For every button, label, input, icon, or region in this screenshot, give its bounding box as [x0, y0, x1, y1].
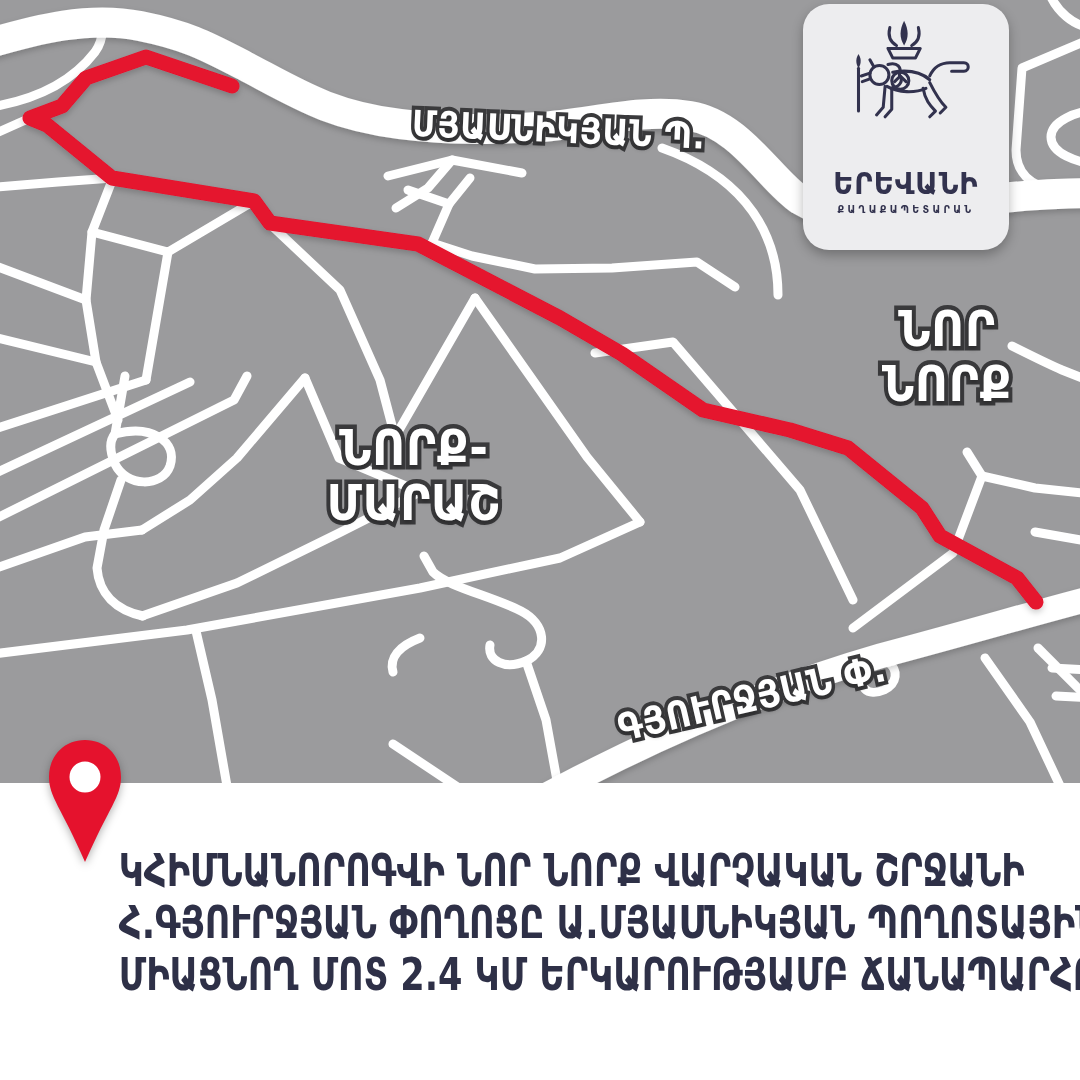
district-label-nork-marash: ՆՈՐՔ- ՄԱՐԱՇ: [317, 421, 511, 531]
caption-line-1: ԿՀԻՄՆԱՆՈՐՈԳՎԻ ՆՈՐ ՆՈՐՔ ՎԱՐՉԱԿԱՆ ՇՐՋԱՆԻ: [119, 845, 961, 897]
logo-city-name: ԵՐԵՎԱՆԻ: [833, 166, 978, 201]
district-label-nor-nork: ՆՈՐ ՆՈՐՔ: [875, 302, 1019, 412]
caption-line-3: ՄԻԱՑՆՈՂ ՄՈՏ 2.4 ԿՄ ԵՐԿԱՐՈՒԹՅԱՄԲ ՃԱՆԱՊԱՐՀ…: [119, 949, 961, 1001]
yerevan-lion-emblem-icon: [830, 18, 982, 170]
yerevan-municipality-logo-card: ԵՐԵՎԱՆԻ ՔԱՂԱՔԱՊԵՏԱՐԱՆ: [803, 4, 1009, 250]
caption-line-2: Հ.ԳՅՈՒՐՋՅԱՆ ՓՈՂՈՑԸ Ա.ՄՅԱՍՆԻԿՅԱՆ ՊՈՂՈՏԱՅԻ…: [119, 897, 961, 949]
caption-text: ԿՀԻՄՆԱՆՈՐՈԳՎԻ ՆՈՐ ՆՈՐՔ ՎԱՐՉԱԿԱՆ ՇՐՋԱՆԻ Հ…: [0, 845, 1080, 1001]
logo-org-name: ՔԱՂԱՔԱՊԵՏԱՐԱՆ: [838, 204, 975, 215]
city-map: ՄՅԱՍՆԻԿՅԱՆ Պ. ԳՅՈՒՐՋՅԱՆ Փ. ՆՈՐ ՆՈՐՔ ՆՈՐՔ…: [0, 0, 1080, 783]
municipality-post: ՄՅԱՍՆԻԿՅԱՆ Պ. ԳՅՈՒՐՋՅԱՆ Փ. ՆՈՐ ՆՈՐՔ ՆՈՐՔ…: [0, 0, 1080, 1080]
